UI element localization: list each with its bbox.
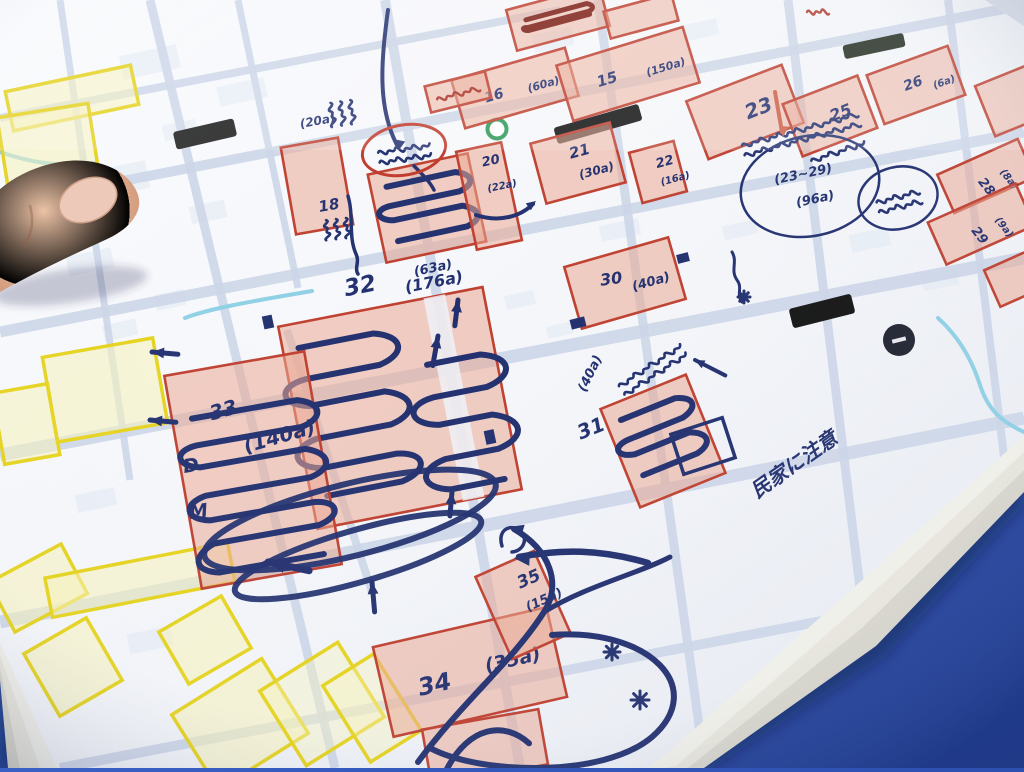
photo-vignette [0,0,1024,768]
photo-annotated-field-map: 16(60a)15(150a)18(20a)(63a)20(22a)21(30a… [0,0,1024,768]
map-photo-canvas: 16(60a)15(150a)18(20a)(63a)20(22a)21(30a… [0,0,1024,768]
